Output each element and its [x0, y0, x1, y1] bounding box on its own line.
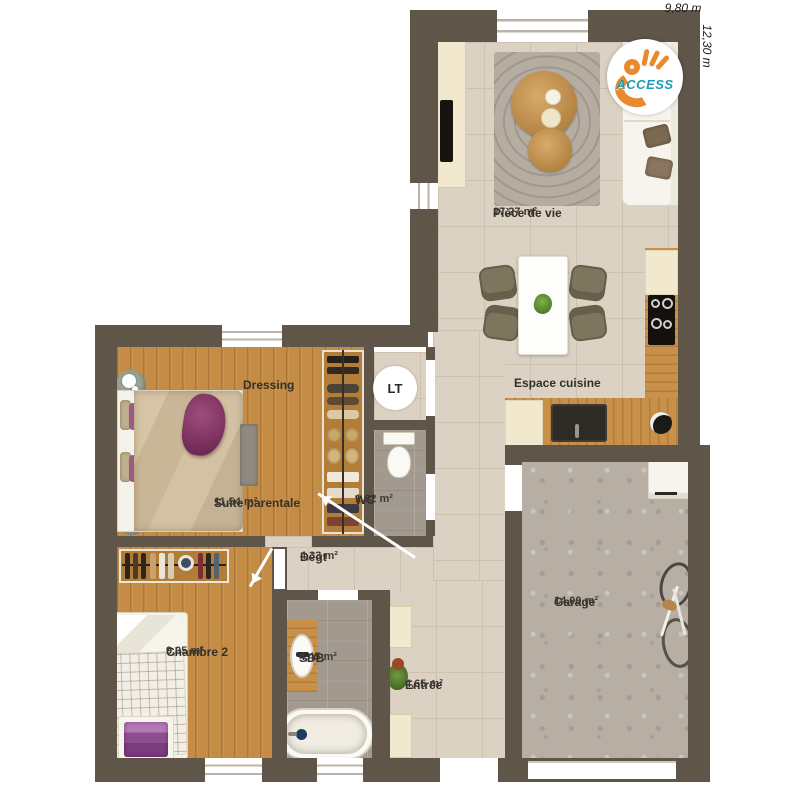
door-wc — [426, 474, 435, 520]
kitchen-sink — [551, 404, 607, 442]
bed-bench — [240, 424, 258, 486]
wardrobe-basket — [345, 448, 359, 464]
wall-segment — [358, 590, 372, 600]
washing-machine-controls — [655, 492, 677, 495]
wardrobe-basket — [327, 448, 341, 464]
dining-chair — [568, 304, 608, 343]
sofa-seat-divider — [624, 120, 670, 122]
garage-service-door — [505, 465, 522, 511]
wall-segment — [95, 325, 117, 782]
wardrobe-basket — [327, 428, 341, 442]
wall-segment — [688, 445, 710, 782]
dining-chair — [482, 304, 522, 343]
lt-badge: LT — [373, 366, 417, 410]
door-lt — [426, 360, 435, 416]
access-logo: ACCESS — [607, 39, 683, 115]
wall-segment — [505, 445, 710, 462]
wardrobe-basket — [345, 428, 359, 442]
hanging-clothes — [125, 553, 130, 579]
cooktop-burner — [651, 299, 660, 308]
logo-ok-ring-icon — [624, 59, 640, 75]
wall-segment — [364, 420, 426, 430]
cooktop-burner — [662, 298, 673, 309]
kitchen-cabinet-upper — [645, 250, 678, 295]
dining-chair — [478, 264, 518, 303]
bathtub-faucet — [296, 729, 307, 740]
hanging-clothes — [150, 553, 156, 579]
hanging-clothes — [206, 553, 211, 579]
kettle — [650, 412, 672, 434]
window — [410, 183, 438, 209]
wardrobe-divider — [342, 350, 344, 534]
dining-chair — [568, 264, 608, 303]
folded-blanket — [124, 722, 168, 757]
entry-plant-flower — [392, 658, 404, 670]
window — [317, 758, 363, 782]
hanging-clothes — [168, 553, 174, 579]
wall-segment — [372, 590, 390, 758]
garage-door — [528, 761, 676, 779]
door-chambre2 — [274, 549, 285, 589]
hanging-clothes — [198, 553, 203, 579]
window — [205, 758, 262, 782]
toilet-tank — [383, 432, 415, 445]
window — [222, 325, 282, 347]
lt-label: LT — [388, 381, 403, 396]
wall-segment — [410, 10, 438, 332]
wall-segment — [117, 536, 265, 547]
door-sdb — [318, 590, 358, 600]
toilet-bowl — [387, 446, 411, 478]
floor-door-gap-suite — [265, 536, 312, 547]
bathtub-faucet-stem — [288, 732, 297, 736]
hanging-clothes — [159, 553, 165, 579]
coffee-table-large — [511, 71, 577, 137]
hat-box — [178, 555, 194, 571]
tray-plate — [541, 108, 561, 128]
dimension-width: 9,80 m — [650, 1, 716, 15]
cooktop-burner — [651, 318, 662, 329]
hanging-clothes — [214, 553, 219, 579]
floor-garage — [522, 462, 688, 758]
hanging-clothes — [141, 553, 146, 579]
dimension-depth: 12,30 m — [700, 16, 714, 76]
tray-plate — [545, 89, 561, 105]
wall-segment — [287, 590, 318, 600]
coffee-table-small — [528, 128, 572, 172]
wall-segment — [364, 347, 374, 547]
logo-text: ACCESS — [607, 77, 683, 92]
floor-plan: LT Pièce de vie 27,27 m² — [0, 0, 800, 800]
window — [497, 10, 588, 42]
sink-faucet — [575, 424, 579, 438]
tv — [440, 100, 453, 162]
cooktop-burner — [663, 320, 672, 329]
kitchen-cabinet-lower — [505, 400, 543, 446]
hanging-clothes — [133, 553, 138, 579]
front-door-opening — [440, 758, 498, 782]
